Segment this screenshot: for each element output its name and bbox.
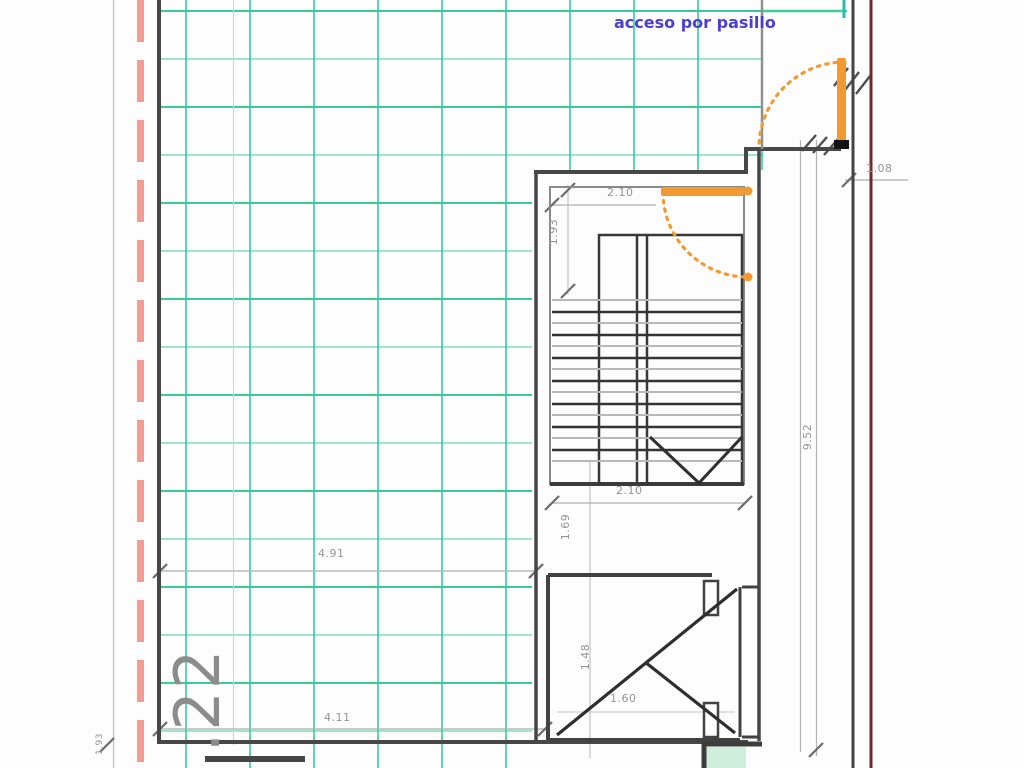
dim-left-bottom-small: 1.93 bbox=[95, 729, 107, 759]
dim-right-total-height: 9.52 bbox=[801, 419, 815, 455]
access-label: acceso por pasillo bbox=[614, 13, 776, 32]
dim-stair-top-width: 2.10 bbox=[607, 186, 634, 199]
dim-shaft-width: 1.60 bbox=[610, 692, 637, 705]
entry-door-arc bbox=[759, 62, 845, 148]
stair-door-hinge bbox=[744, 187, 753, 196]
door-swings bbox=[661, 58, 849, 282]
bottom-right-room-corner bbox=[205, 744, 762, 768]
entry-door-stop bbox=[834, 140, 849, 149]
stair-door-arc-end bbox=[744, 273, 753, 282]
dim-stair-lower-landing: 1.69 bbox=[559, 509, 573, 545]
dim-room-width-bottom: 4.11 bbox=[324, 711, 351, 724]
floor-plan: acceso por pasillo 2.10 1.93 2.10 1.69 1… bbox=[0, 0, 1024, 768]
dim-room-width-mid: 4.91 bbox=[318, 547, 345, 560]
unit-number-label: .22 bbox=[153, 620, 243, 768]
dim-shaft-depth: 1.48 bbox=[579, 639, 593, 675]
dimension-lines bbox=[160, 180, 908, 729]
entry-door-leaf bbox=[837, 58, 846, 142]
dim-stair-bottom-width: 2.10 bbox=[616, 484, 643, 497]
dim-stair-upper-run: 1.93 bbox=[547, 214, 561, 250]
stair-door-leaf bbox=[661, 187, 744, 196]
dim-entry-door-width: 1.08 bbox=[866, 162, 893, 175]
